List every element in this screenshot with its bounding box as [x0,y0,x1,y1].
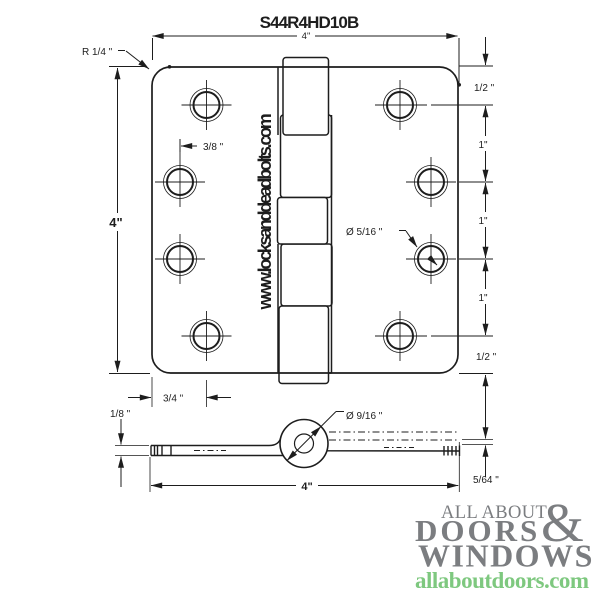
svg-text:www.locksanddeadbolts.com: www.locksanddeadbolts.com [255,114,275,310]
svg-text:1": 1" [479,140,489,151]
svg-text:3/8 ": 3/8 " [203,142,224,153]
svg-text:allaboutdoors.com: allaboutdoors.com [415,568,589,593]
svg-text:Ø 5/16 ": Ø 5/16 " [346,227,383,238]
svg-text:1/2 ": 1/2 " [474,83,495,94]
svg-text:1": 1" [479,216,489,227]
svg-text:5/64 ": 5/64 " [473,475,499,486]
svg-text:3/4 ": 3/4 " [163,394,184,405]
svg-text:Ø 9/16 ": Ø 9/16 " [346,411,383,422]
svg-text:S44R4HD10B: S44R4HD10B [260,13,359,32]
svg-text:4": 4" [302,31,311,42]
svg-text:4": 4" [301,481,312,493]
svg-text:1/2 ": 1/2 " [476,352,497,363]
svg-text:R 1/4 ": R 1/4 " [82,47,113,58]
svg-text:4": 4" [109,215,122,230]
svg-text:1": 1" [479,293,489,304]
svg-text:1/8 ": 1/8 " [110,409,131,420]
